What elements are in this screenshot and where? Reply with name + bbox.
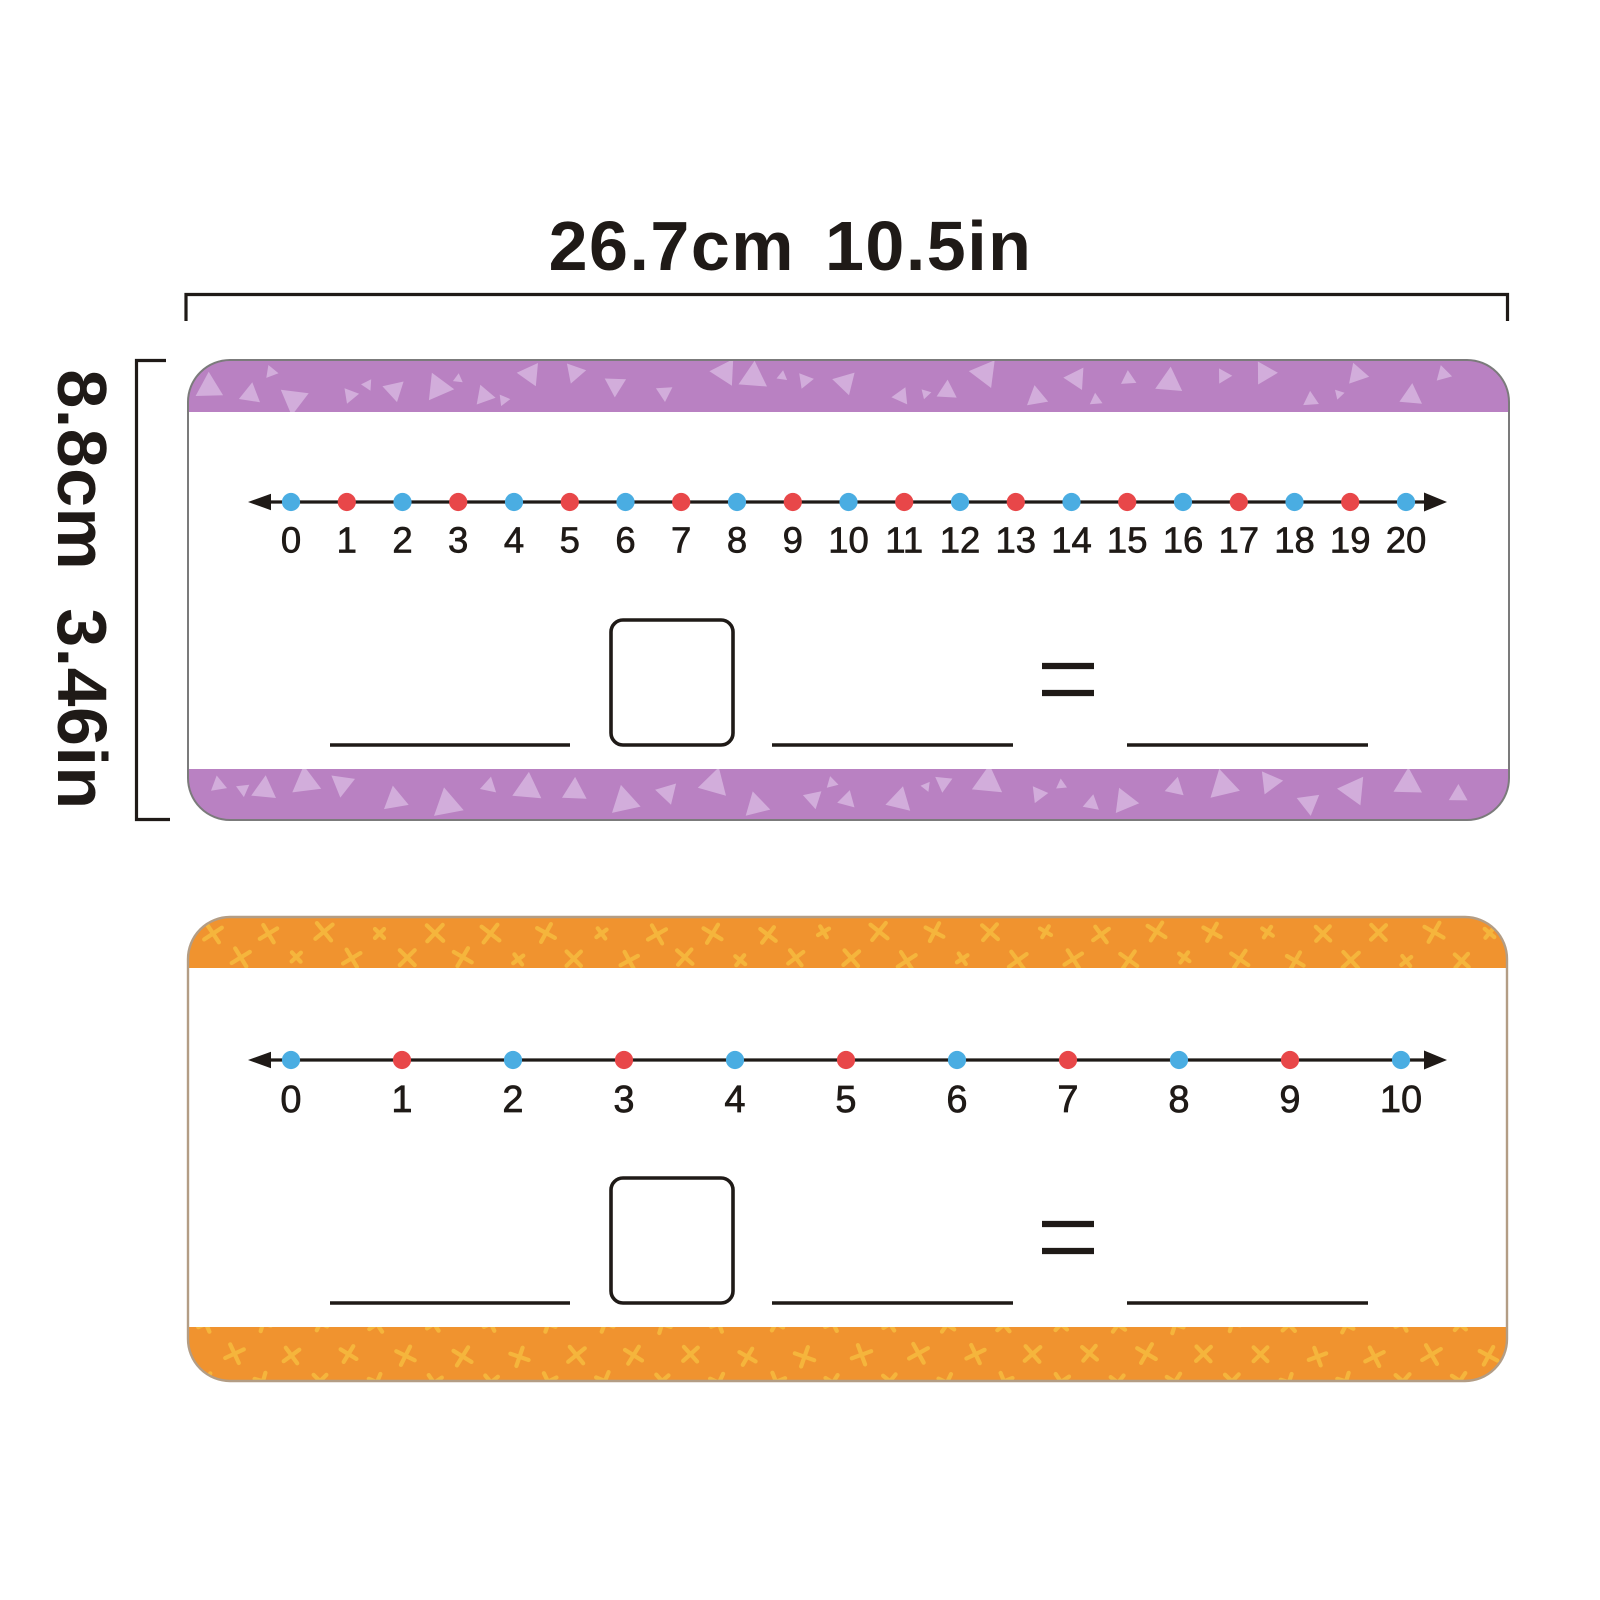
svg-text:3: 3 [448, 520, 468, 561]
svg-text:20: 20 [1386, 520, 1427, 561]
svg-text:9: 9 [1279, 1079, 1300, 1121]
svg-text:5: 5 [560, 520, 580, 561]
svg-text:6: 6 [615, 520, 635, 561]
svg-text:9: 9 [783, 520, 803, 561]
svg-text:26.7cm 10.5in: 26.7cm 10.5in [549, 207, 1033, 285]
svg-text:7: 7 [1057, 1079, 1078, 1121]
svg-text:12: 12 [940, 520, 981, 561]
svg-text:8: 8 [727, 520, 747, 561]
svg-text:10: 10 [828, 520, 869, 561]
svg-text:8: 8 [1168, 1079, 1189, 1121]
svg-text:7: 7 [671, 520, 691, 561]
svg-text:0: 0 [281, 520, 301, 561]
svg-text:17: 17 [1218, 520, 1259, 561]
svg-text:10: 10 [1380, 1079, 1422, 1121]
svg-text:1: 1 [337, 520, 357, 561]
svg-text:4: 4 [724, 1079, 745, 1121]
svg-text:5: 5 [835, 1079, 856, 1121]
svg-text:1: 1 [391, 1079, 412, 1121]
svg-text:11: 11 [885, 520, 923, 561]
svg-text:8.8cm 3.46in: 8.8cm 3.46in [43, 369, 121, 809]
svg-text:4: 4 [504, 520, 524, 561]
svg-text:3: 3 [613, 1079, 634, 1121]
svg-text:13: 13 [995, 520, 1036, 561]
svg-text:14: 14 [1051, 520, 1092, 561]
svg-text:6: 6 [946, 1079, 967, 1121]
svg-text:15: 15 [1107, 520, 1148, 561]
svg-text:19: 19 [1330, 520, 1371, 561]
svg-text:16: 16 [1163, 520, 1204, 561]
svg-text:18: 18 [1274, 520, 1315, 561]
svg-text:2: 2 [392, 520, 412, 561]
svg-text:0: 0 [280, 1079, 301, 1121]
svg-text:2: 2 [502, 1079, 523, 1121]
